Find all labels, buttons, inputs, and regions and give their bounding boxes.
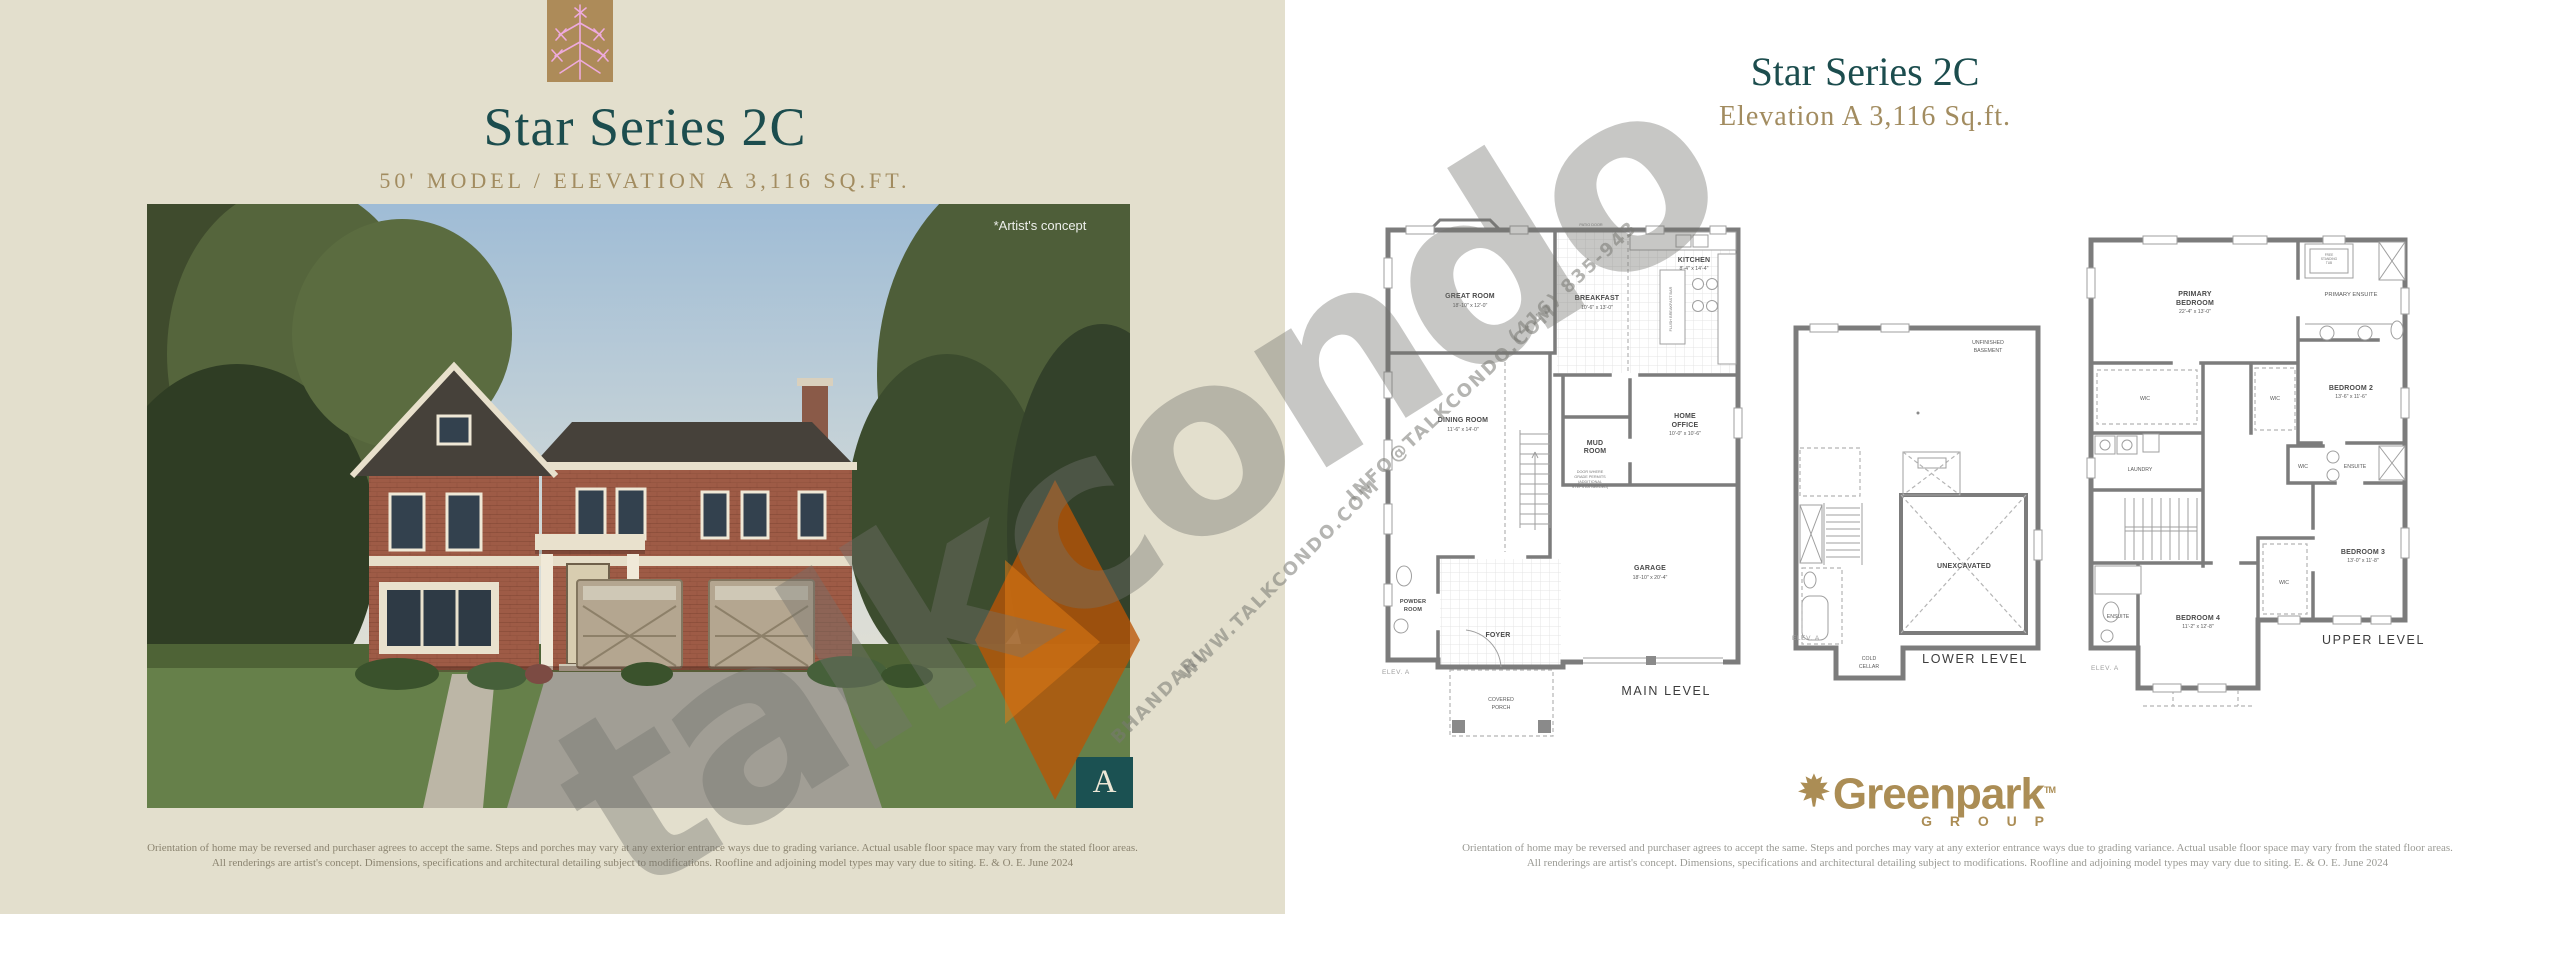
rough-in-fixtures: [1802, 568, 1842, 644]
upper-level-floor-plan: PRIMARY BEDROOM 22'-4" x 13'-0" PRIMARY …: [2083, 228, 2428, 708]
laundry-fixtures: [2095, 434, 2159, 454]
brand-tm: TM: [2044, 785, 2055, 795]
house-rendering: *Artist's concept: [147, 204, 1130, 808]
covered-porch-outline: [1450, 670, 1553, 736]
label-unfinished-2: BASEMENT: [1974, 348, 2003, 354]
room-label-breakfast: BREAKFAST: [1575, 295, 1620, 302]
plan-page-title: Star Series 2C: [1465, 48, 2265, 95]
room-label-home-office-2: OFFICE: [1672, 422, 1699, 429]
label-bedroom2: BEDROOM 2: [2329, 385, 2373, 392]
elevation-a-letter: A: [1093, 764, 1117, 801]
room-dims-breakfast: 10'-6" x 13'-0": [1581, 305, 1613, 311]
room-dims-garage: 18'-10" x 20'-4": [1633, 575, 1668, 581]
garage-note-4: STEPS AS NEEDED): [1572, 485, 1609, 489]
main-level-floor-plan: GREAT ROOM 18'-10" x 12'-0" BREAKFAST 10…: [1378, 212, 1748, 747]
greenpark-logo: GreenparkTM G R O U P: [1795, 768, 2055, 829]
label-bedroom4: BEDROOM 4: [2176, 615, 2220, 622]
lower-windows: [1810, 324, 2042, 560]
garage-note-2: GRADE PERMITS: [1574, 475, 1606, 479]
label-wic-mid: WIC: [2270, 396, 2280, 402]
label-primary-2: BEDROOM: [2176, 300, 2214, 307]
caption-lower-level: LOWER LEVEL: [1922, 652, 2028, 666]
room-dims-home-office: 10'-0" x 10'-6": [1669, 431, 1701, 437]
driveway: [507, 672, 882, 808]
brand-name-text: Greenpark: [1833, 770, 2044, 819]
left-disclaimer-line1: Orientation of home may be reversed and …: [20, 841, 1265, 856]
label-breakfast-bar: FLUSH BREAKFAST BAR: [1669, 286, 1673, 331]
room-label-garage: GARAGE: [1634, 565, 1666, 572]
dims-bedroom3: 13'-0" x 11'-8": [2347, 558, 2379, 564]
room-label-powder-2: ROOM: [1404, 607, 1422, 613]
dims-bedroom2: 13'-6" x 11'-6": [2335, 394, 2367, 400]
right-disclaimer-line1: Orientation of home may be reversed and …: [1335, 841, 2560, 856]
label-unfinished-1: UNFINISHED: [1972, 340, 2004, 346]
room-label-home-office-1: HOME: [1674, 413, 1696, 420]
page-title: Star Series 2C: [345, 96, 945, 158]
brand-name: GreenparkTM: [1833, 768, 2055, 817]
left-heading: Star Series 2C 50' MODEL / ELEVATION A 3…: [345, 96, 945, 194]
label-tub-3: TUB: [2326, 261, 2332, 265]
room-label-great-room: GREAT ROOM: [1445, 293, 1495, 300]
label-primary-ensuite: PRIMARY ENSUITE: [2325, 292, 2378, 298]
dims-primary: 22'-4" x 13'-0": [2179, 309, 2211, 315]
right-disclaimer-line2: All renderings are artist's concept. Dim…: [1335, 856, 2560, 871]
elev-a-main: ELEV. A: [1382, 669, 1410, 676]
future-stair-box: [1903, 452, 1960, 495]
label-ensuite-2: ENSUITE: [2344, 464, 2367, 470]
pine-tree-logo-icon: [547, 0, 613, 82]
label-wic-primary: WIC: [2140, 396, 2150, 402]
label-bedroom3: BEDROOM 3: [2341, 549, 2385, 556]
label-cold-cellar-2: CELLAR: [1859, 664, 1879, 670]
right-heading: Star Series 2C Elevation A 3,116 Sq.ft.: [1465, 48, 2265, 133]
room-dims-great-room: 18'-10" x 12'-0": [1453, 303, 1488, 309]
model-subtitle: 50' MODEL / ELEVATION A 3,116 SQ.FT.: [345, 168, 945, 194]
mechanical-area: [1800, 448, 1860, 496]
elev-a-lower: ELEV. A: [1792, 635, 1820, 642]
label-patio-door: PATIO DOOR: [1579, 223, 1603, 227]
label-primary-1: PRIMARY: [2178, 291, 2212, 298]
room-label-mud-1: MUD: [1587, 440, 1604, 447]
room-label-powder-1: POWDER: [1400, 599, 1426, 605]
garage-note-3: (ADDITIONAL: [1578, 480, 1602, 484]
label-wic-hall: WIC: [2298, 464, 2308, 470]
label-ensuite-left: ENSUITE: [2107, 614, 2130, 620]
right-disclaimer: Orientation of home may be reversed and …: [1335, 841, 2560, 871]
brochure-spread: Star Series 2C 50' MODEL / ELEVATION A 3…: [0, 0, 2560, 914]
label-laundry: LAUNDRY: [2128, 467, 2153, 473]
garage-door-opening: [1583, 656, 1723, 665]
caption-upper-level: UPPER LEVEL: [2322, 633, 2425, 647]
main-stairs: [1520, 430, 1550, 530]
label-wic-bed4: WIC: [2279, 580, 2289, 586]
left-ensuite-fixtures: [2095, 566, 2141, 642]
label-cold-cellar-1: COLD: [1862, 656, 1877, 662]
room-label-mud-2: ROOM: [1584, 448, 1607, 455]
label-unexcavated: UNEXCAVATED: [1937, 563, 1991, 570]
left-page: Star Series 2C 50' MODEL / ELEVATION A 3…: [0, 0, 1285, 914]
dims-bedroom4: 11'-2" x 12'-8": [2182, 624, 2214, 630]
room-label-porch-1: COVERED: [1488, 697, 1514, 703]
elevation-a-badge: A: [1076, 757, 1133, 808]
room-label-foyer: FOYER: [1485, 632, 1510, 639]
lower-stairs: [1800, 503, 1862, 565]
artists-concept-note: *Artist's concept: [994, 218, 1087, 233]
room-dims-dining: 11'-6" x 14'-0": [1447, 427, 1479, 433]
room-label-kitchen: KITCHEN: [1678, 257, 1711, 264]
room-dims-kitchen: 8'-4" x 14'-4": [1679, 266, 1708, 272]
elev-a-upper: ELEV. A: [2091, 665, 2119, 672]
room-label-porch-2: PORCH: [1492, 705, 1511, 711]
left-disclaimer-line2: All renderings are artist's concept. Dim…: [20, 856, 1265, 871]
plan-page-subtitle: Elevation A 3,116 Sq.ft.: [1465, 101, 2265, 133]
caption-main-level: MAIN LEVEL: [1621, 684, 1711, 698]
garage-note-1: DOOR WHERE: [1577, 470, 1604, 474]
room-label-dining: DINING ROOM: [1438, 417, 1488, 424]
lower-level-floor-plan: UNFINISHED BASEMENT UNEXCAVATED COLD CEL…: [1788, 318, 2048, 688]
left-disclaimer: Orientation of home may be reversed and …: [20, 841, 1265, 871]
upper-stairs: [2125, 498, 2197, 560]
maple-leaf-icon: [1795, 770, 1833, 810]
